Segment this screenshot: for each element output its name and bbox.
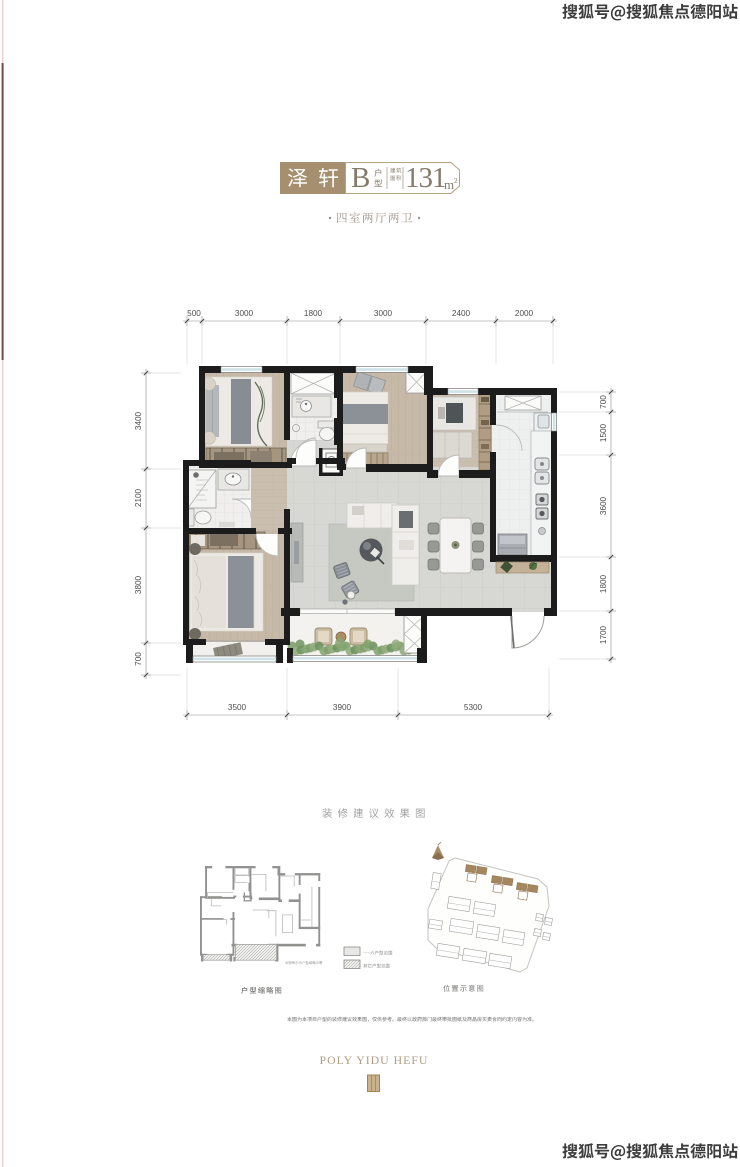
svg-text:2000: 2000 bbox=[515, 309, 534, 318]
svg-text:131: 131 bbox=[405, 162, 446, 194]
svg-text:3600: 3600 bbox=[599, 496, 608, 515]
svg-text:700: 700 bbox=[599, 395, 608, 409]
svg-text:1800: 1800 bbox=[599, 574, 608, 593]
svg-text:1700: 1700 bbox=[599, 625, 608, 644]
svg-text:700: 700 bbox=[134, 652, 143, 666]
svg-text:1800: 1800 bbox=[304, 309, 323, 318]
svg-text:3500: 3500 bbox=[228, 703, 247, 712]
svg-text:2: 2 bbox=[454, 177, 458, 185]
svg-text:500: 500 bbox=[187, 309, 201, 318]
svg-text:m: m bbox=[444, 177, 454, 192]
svg-text:1500: 1500 bbox=[599, 423, 608, 442]
svg-text:POLY YIDU HEFU: POLY YIDU HEFU bbox=[320, 1053, 429, 1067]
svg-text:5300: 5300 bbox=[464, 703, 483, 712]
svg-text:2400: 2400 bbox=[452, 309, 471, 318]
svg-text:3900: 3900 bbox=[333, 703, 352, 712]
svg-text:3800: 3800 bbox=[134, 575, 143, 594]
svg-text:3000: 3000 bbox=[374, 309, 393, 318]
svg-text:3000: 3000 bbox=[235, 309, 254, 318]
svg-text:B: B bbox=[351, 162, 370, 194]
svg-text:2100: 2100 bbox=[134, 488, 143, 507]
svg-text:3400: 3400 bbox=[134, 411, 143, 430]
